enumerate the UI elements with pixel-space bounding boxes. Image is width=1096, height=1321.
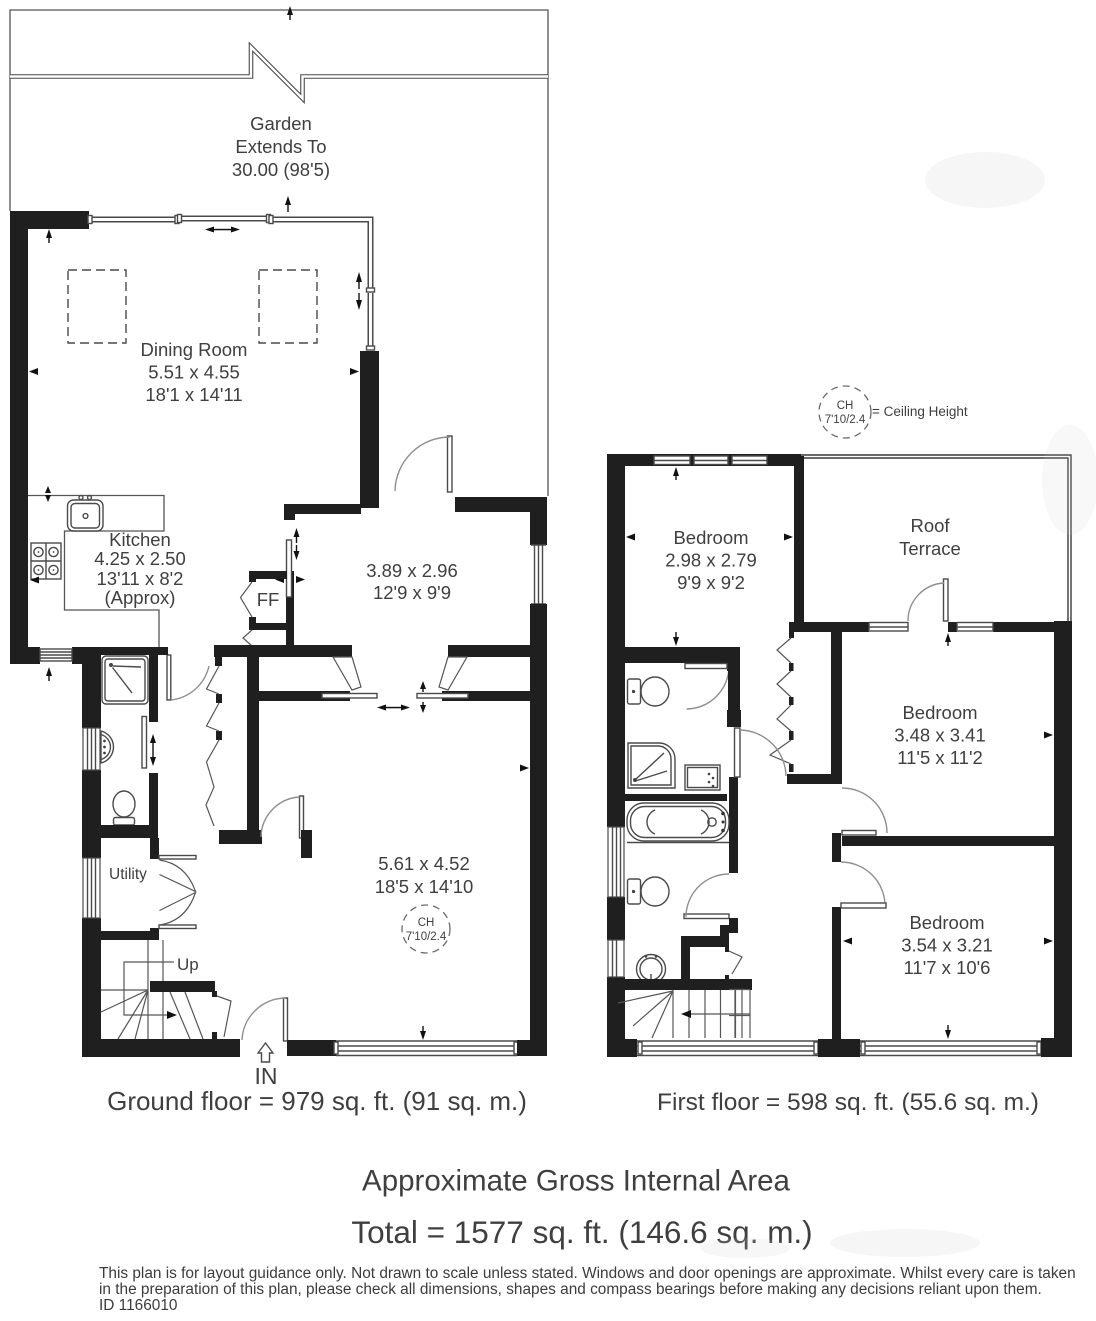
svg-text:11'5 x 11'2: 11'5 x 11'2 (897, 747, 983, 768)
svg-text:5.51 x 4.55: 5.51 x 4.55 (148, 362, 240, 383)
svg-text:30.00 (98'5): 30.00 (98'5) (232, 159, 330, 180)
svg-text:This plan is for layout guidan: This plan is for layout guidance only. N… (99, 1265, 1076, 1282)
svg-text:ID 1166010: ID 1166010 (99, 1297, 177, 1314)
svg-text:Kitchen: Kitchen (109, 529, 171, 550)
svg-text:13'11 x 8'2: 13'11 x 8'2 (97, 568, 184, 589)
svg-text:= Ceiling Height: = Ceiling Height (872, 404, 968, 419)
svg-text:First floor = 598 sq. ft. (55.: First floor = 598 sq. ft. (55.6 sq. m.) (657, 1089, 1039, 1116)
svg-text:Utility: Utility (109, 866, 147, 883)
svg-text:12'9 x 9'9: 12'9 x 9'9 (373, 582, 451, 603)
svg-text:Up: Up (177, 955, 199, 974)
svg-text:4.25 x 2.50: 4.25 x 2.50 (94, 548, 186, 569)
svg-text:Dining Room: Dining Room (141, 339, 248, 360)
svg-text:7'10/2.4: 7'10/2.4 (825, 414, 866, 426)
svg-text:Bedroom: Bedroom (909, 912, 984, 933)
svg-text:3.48 x 3.41: 3.48 x 3.41 (894, 725, 986, 746)
svg-text:Bedroom: Bedroom (673, 527, 748, 548)
svg-text:CH: CH (837, 400, 854, 412)
svg-text:18'1 x 14'11: 18'1 x 14'11 (145, 384, 242, 405)
svg-text:Bedroom: Bedroom (902, 702, 977, 723)
svg-text:9'9 x 9'2: 9'9 x 9'2 (677, 572, 745, 593)
svg-text:CH: CH (418, 917, 435, 929)
svg-text:Ground floor = 979 sq. ft. (91: Ground floor = 979 sq. ft. (91 sq. m.) (107, 1086, 527, 1116)
svg-text:3.54 x 3.21: 3.54 x 3.21 (901, 935, 993, 956)
svg-text:18'5 x 14'10: 18'5 x 14'10 (375, 876, 474, 897)
svg-text:2.98 x 2.79: 2.98 x 2.79 (665, 550, 757, 571)
svg-text:FF: FF (257, 589, 280, 610)
svg-text:7'10/2.4: 7'10/2.4 (406, 931, 447, 943)
svg-text:(Approx): (Approx) (105, 587, 176, 608)
svg-text:in the preparation of this pla: in the preparation of this plan, please … (99, 1281, 1042, 1298)
svg-text:Roof: Roof (910, 515, 950, 536)
svg-text:Approximate Gross Internal Are: Approximate Gross Internal Area (362, 1165, 791, 1198)
svg-text:Terrace: Terrace (899, 538, 961, 559)
svg-text:5.61 x 4.52: 5.61 x 4.52 (378, 853, 470, 874)
svg-text:11'7 x 10'6: 11'7 x 10'6 (904, 957, 991, 978)
svg-text:Garden: Garden (250, 113, 312, 134)
svg-text:3.89 x 2.96: 3.89 x 2.96 (366, 560, 458, 581)
svg-text:Extends To: Extends To (235, 136, 326, 157)
